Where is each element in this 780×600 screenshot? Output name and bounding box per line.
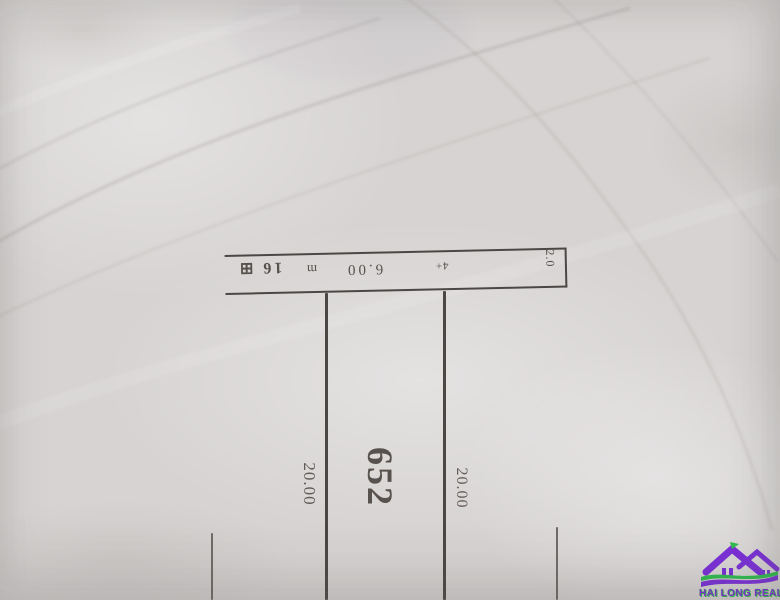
survey-mark: m bbox=[307, 261, 317, 277]
house-logo-icon bbox=[699, 541, 780, 587]
strip-end-line bbox=[565, 248, 568, 288]
parcel-sketch: 16 ⊞ m 6.00 4+ 2.0 20.00 652 20.00 bbox=[0, 0, 780, 600]
parcel-left-boundary bbox=[325, 293, 328, 600]
right-side-dimension: 20.00 bbox=[452, 468, 470, 509]
strip-width-dimension: 2.0 bbox=[542, 249, 557, 267]
parcel-number: 652 bbox=[359, 447, 401, 507]
survey-mark: 4+ bbox=[435, 259, 449, 271]
hai-long-real-watermark: HAI LONG REAL bbox=[699, 541, 780, 599]
neighbor-boundary-left bbox=[211, 533, 213, 600]
parcel-right-boundary bbox=[443, 291, 446, 600]
adjacent-parcel-label: 16 ⊞ bbox=[237, 258, 283, 279]
adjacent-parcel-label-text: 16 ⊞ bbox=[237, 258, 283, 279]
road-strip: 16 ⊞ m 6.00 4+ 2.0 bbox=[224, 241, 567, 298]
frontage-dimension: 6.00 bbox=[345, 260, 384, 278]
strip-lower-line bbox=[225, 286, 567, 295]
watermark-brand-text: HAI LONG REAL bbox=[699, 588, 780, 599]
strip-upper-line bbox=[225, 248, 567, 257]
neighbor-boundary-right bbox=[556, 527, 558, 600]
scanned-cadastral-sheet: 16 ⊞ m 6.00 4+ 2.0 20.00 652 20.00 bbox=[0, 0, 780, 600]
left-side-dimension: 20.00 bbox=[299, 462, 319, 505]
